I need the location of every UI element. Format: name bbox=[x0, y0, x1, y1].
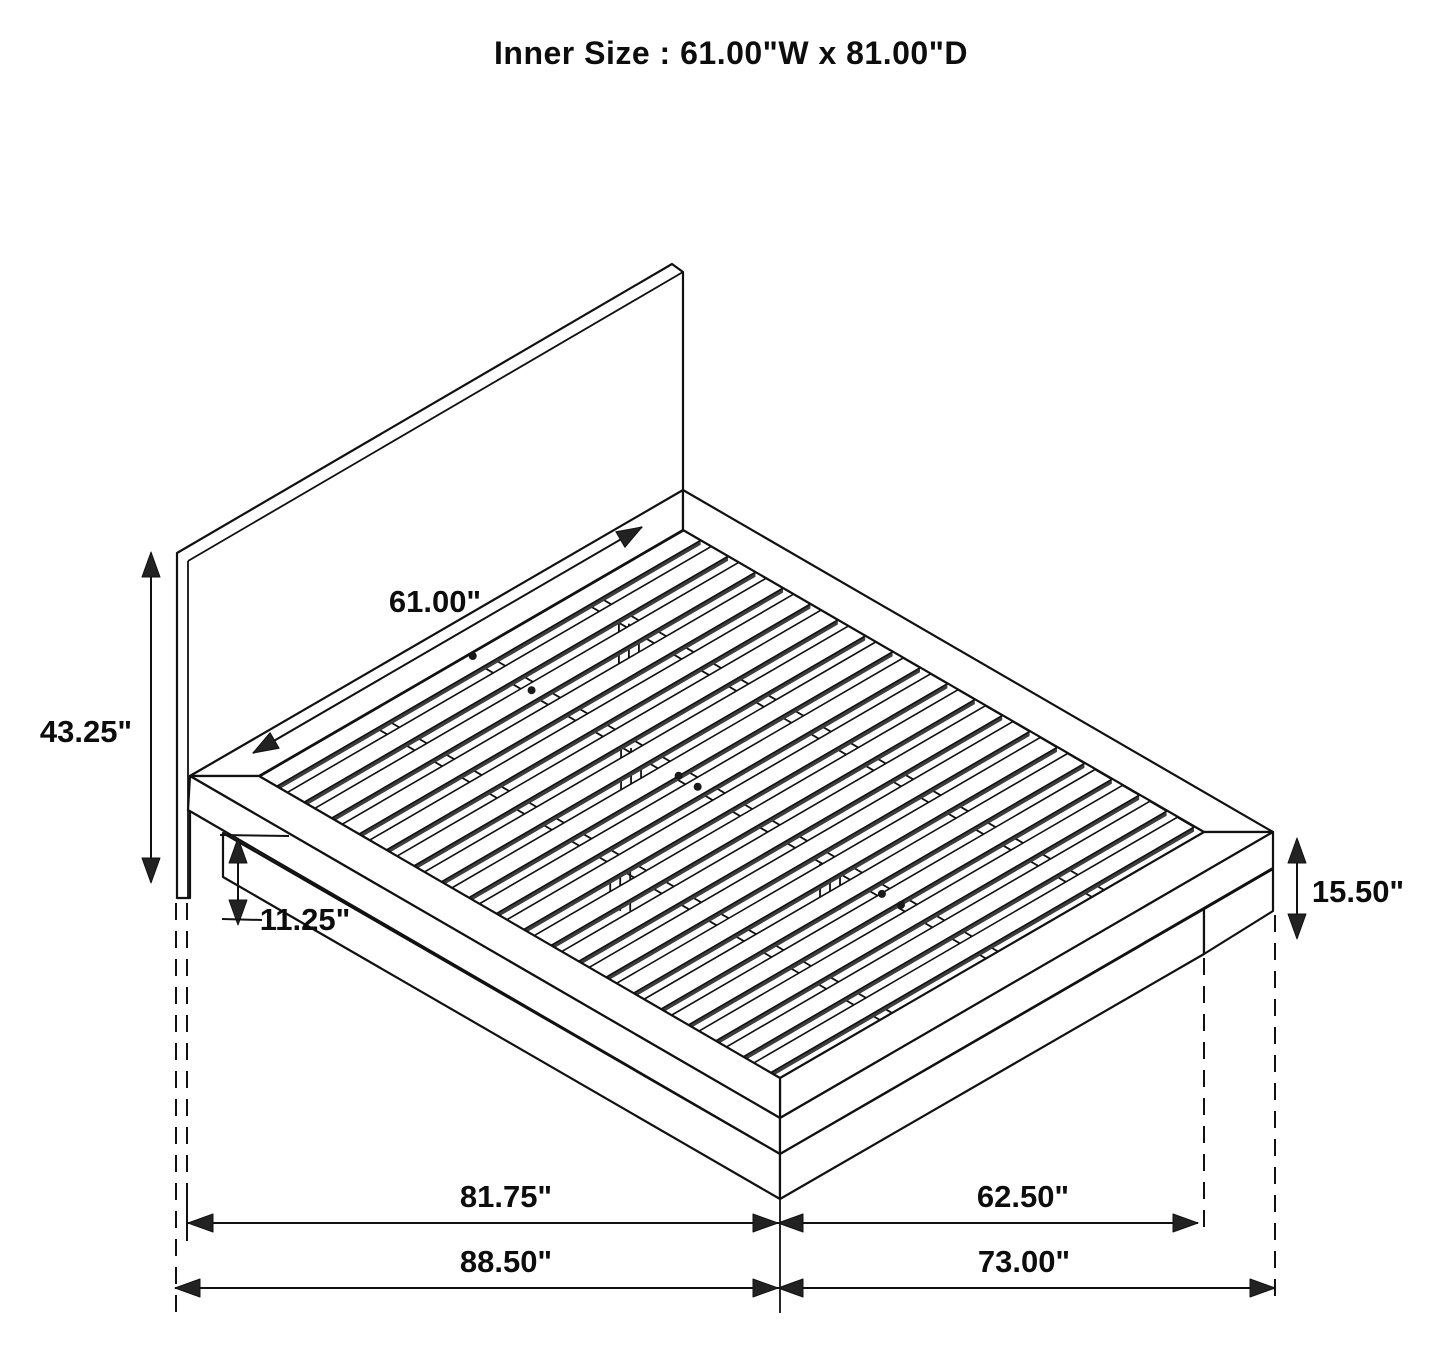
bed-drawing bbox=[142, 264, 1306, 1322]
width-73-00-label: 73.00" bbox=[978, 1244, 1070, 1279]
bed-dimension-diagram: Inner Size : 61.00"W x 81.00"D 61.00" 43… bbox=[0, 0, 1445, 1366]
length-81-75-label: 81.75" bbox=[460, 1179, 552, 1214]
width-62-50-label: 62.50" bbox=[977, 1179, 1069, 1214]
width-61-label: 61.00" bbox=[389, 584, 481, 619]
length-88-50-label: 88.50" bbox=[460, 1244, 552, 1279]
height-15-50-label: 15.50" bbox=[1312, 874, 1404, 909]
bed-dimension-diagram-page: Inner Size : 61.00"W x 81.00"D 61.00" 43… bbox=[0, 0, 1445, 1366]
height-43-25-label: 43.25" bbox=[40, 714, 132, 749]
clearance-11-25-label: 11.25" bbox=[260, 902, 351, 937]
title-label: Inner Size : 61.00"W x 81.00"D bbox=[494, 35, 968, 71]
